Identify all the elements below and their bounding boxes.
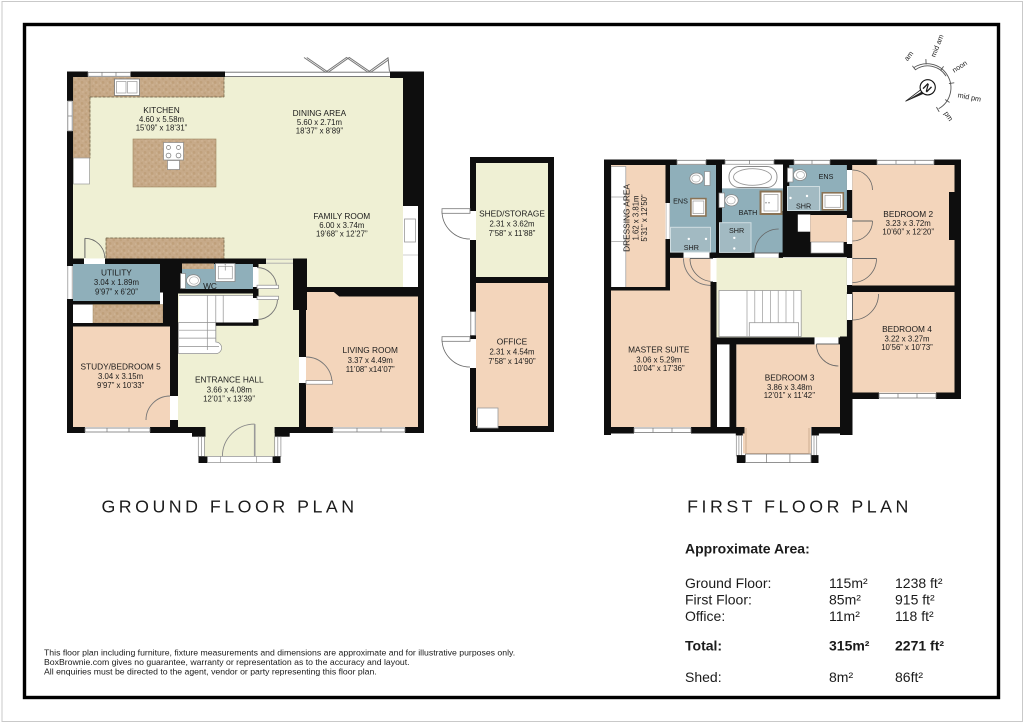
svg-text:3.37 x 4.49m: 3.37 x 4.49m [348, 356, 393, 365]
svg-text:BEDROOM 3: BEDROOM 3 [765, 373, 815, 383]
svg-text:BoxBrownie.com gives no guaran: BoxBrownie.com gives no guarantee, warra… [44, 657, 410, 667]
svg-text:OFFICE: OFFICE [497, 337, 528, 347]
svg-text:UTILITY: UTILITY [101, 268, 132, 278]
svg-text:DINING AREA: DINING AREA [293, 108, 347, 118]
svg-text:KITCHEN: KITCHEN [143, 105, 179, 115]
svg-text:118 ft²: 118 ft² [895, 608, 934, 624]
svg-text:BEDROOM 2: BEDROOM 2 [883, 209, 933, 219]
svg-text:MASTER SUITE: MASTER SUITE [628, 344, 690, 354]
svg-text:86ft²: 86ft² [895, 669, 923, 685]
svg-text:10’56” x 10’73”: 10’56” x 10’73” [881, 343, 933, 352]
svg-text:First Floor:: First Floor: [685, 592, 752, 608]
svg-text:WC: WC [203, 281, 217, 291]
svg-text:6.00 x 3.74m: 6.00 x 3.74m [319, 221, 364, 230]
svg-text:5.60 x 2.71m: 5.60 x 2.71m [297, 118, 342, 127]
svg-text:Ground Floor:: Ground Floor: [685, 575, 771, 591]
svg-text:3.66 x 4.08m: 3.66 x 4.08m [207, 385, 252, 394]
svg-text:Total:: Total: [685, 638, 722, 654]
svg-text:GROUND FLOOR PLAN: GROUND FLOOR PLAN [101, 497, 357, 517]
svg-text:2.31 x 3.62m: 2.31 x 3.62m [489, 220, 534, 229]
svg-text:7’58” x 14’90”: 7’58” x 14’90” [488, 357, 536, 366]
svg-text:8m²: 8m² [829, 669, 853, 685]
svg-text:FIRST FLOOR PLAN: FIRST FLOOR PLAN [687, 497, 912, 517]
svg-text:4.60 x 5.58m: 4.60 x 5.58m [139, 115, 184, 124]
svg-text:11m²: 11m² [829, 608, 860, 624]
svg-text:3.04 x 1.89m: 3.04 x 1.89m [94, 278, 139, 287]
svg-text:85m²: 85m² [829, 592, 861, 608]
svg-text:2271 ft²: 2271 ft² [895, 638, 944, 654]
svg-text:12’01” x 11’42’’: 12’01” x 11’42’’ [764, 391, 816, 400]
svg-text:LIVING ROOM: LIVING ROOM [343, 345, 398, 355]
svg-text:3.04 x 3.15m: 3.04 x 3.15m [98, 372, 143, 381]
svg-text:Office:: Office: [685, 608, 725, 624]
svg-text:7’58” x 11’88”: 7’58” x 11’88” [489, 229, 536, 238]
svg-text:BEDROOM 4: BEDROOM 4 [882, 324, 932, 334]
svg-text:This floor plan including furn: This floor plan including furniture, fix… [44, 648, 515, 658]
svg-text:12’01” x 13’39’’: 12’01” x 13’39’’ [203, 395, 256, 404]
svg-text:ENTRANCE HALL: ENTRANCE HALL [195, 375, 264, 385]
svg-text:115m²: 115m² [829, 575, 868, 591]
svg-text:315m²: 315m² [829, 638, 870, 654]
svg-text:DRESSING AREA: DRESSING AREA [622, 184, 632, 252]
svg-text:All enquiries must be directed: All enquiries must be directed to the ag… [44, 667, 377, 677]
svg-text:5’31” x 12’50”: 5’31” x 12’50” [640, 194, 649, 242]
svg-text:15’09” x 18’31”: 15’09” x 18’31” [136, 124, 188, 133]
svg-text:STUDY/BEDROOM 5: STUDY/BEDROOM 5 [80, 362, 161, 372]
svg-text:915 ft²: 915 ft² [895, 592, 935, 608]
svg-text:FAMILY ROOM: FAMILY ROOM [313, 211, 370, 221]
svg-text:9’97” x 6’20”: 9’97” x 6’20” [95, 288, 138, 297]
svg-text:BATH: BATH [739, 208, 758, 217]
svg-text:ENS: ENS [819, 172, 834, 181]
svg-text:Approximate Area:: Approximate Area: [685, 541, 810, 557]
svg-text:2.31 x 4.54m: 2.31 x 4.54m [489, 348, 534, 357]
svg-text:10’60” x 12’20”: 10’60” x 12’20” [882, 228, 934, 237]
svg-text:SHED/STORAGE: SHED/STORAGE [479, 209, 545, 219]
svg-text:18’37” x 8’89”: 18’37” x 8’89” [296, 127, 344, 136]
svg-text:SHR: SHR [796, 202, 811, 211]
svg-text:19’68” x 12’27”: 19’68” x 12’27” [316, 230, 368, 239]
svg-text:9’97” x 10’33”: 9’97” x 10’33” [97, 381, 145, 390]
svg-text:SHR: SHR [729, 226, 744, 235]
svg-text:Shed:: Shed: [685, 669, 722, 685]
svg-text:1238 ft²: 1238 ft² [895, 575, 943, 591]
svg-text:ENS: ENS [673, 197, 688, 206]
svg-text:11’08” x14’07”: 11’08” x14’07” [346, 365, 395, 374]
svg-text:10’04” x 17’36”: 10’04” x 17’36” [633, 364, 685, 373]
svg-text:SHR: SHR [684, 243, 699, 252]
